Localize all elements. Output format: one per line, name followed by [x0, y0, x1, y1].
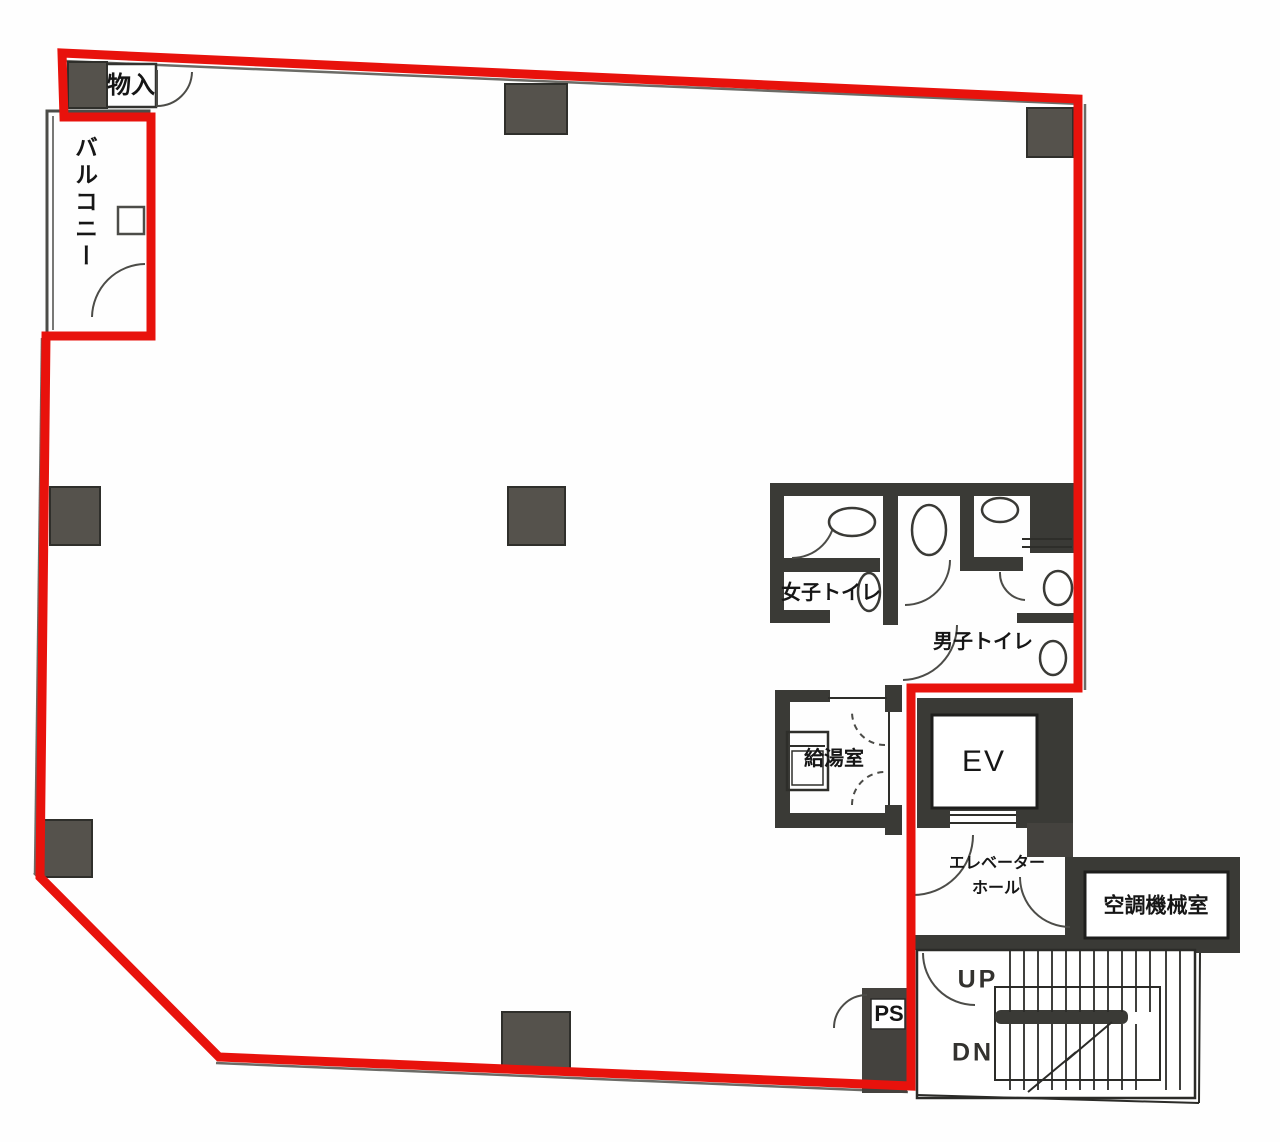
kitchen-folding-door-arc-lower — [852, 772, 885, 805]
urinal-fixture — [982, 498, 1018, 522]
column — [40, 820, 92, 877]
label-mens-toilet: 男子トイレ — [933, 632, 1033, 652]
label-elevator-hall-2: ホール — [972, 881, 1020, 897]
label-womens-toilet: 女子トイレ — [781, 583, 881, 603]
stall2-door-arc — [905, 560, 950, 605]
column — [68, 62, 107, 108]
label-storage: 物入 — [107, 74, 155, 98]
toilet-fixture — [912, 505, 946, 555]
label-hvac-room: 空調機械室 — [1104, 896, 1209, 917]
label-kitchenette: 給湯室 — [804, 749, 864, 769]
column — [508, 487, 565, 545]
storage-door-arc — [157, 72, 192, 106]
label-elevator-hall-1: エレベーター — [949, 856, 1045, 872]
toilet-fixture — [829, 508, 875, 536]
kitchen-folding-door-arc-upper — [852, 712, 885, 745]
columns — [40, 62, 1073, 1072]
lease-boundary — [40, 53, 1078, 1086]
stall3-door-arc — [1000, 572, 1025, 600]
stair-handrail — [995, 1010, 1128, 1024]
floor-plan: 物入 バルコニー 女子トイレ 男子トイレ 給湯室 EV エレベーター ホール 空… — [0, 0, 1280, 1142]
sink-fixture — [1044, 571, 1072, 605]
column — [502, 1012, 570, 1072]
label-balcony: バルコニー — [73, 136, 96, 271]
hall-to-stairs-door-arc — [1020, 877, 1070, 927]
column — [50, 487, 100, 545]
column — [505, 84, 567, 134]
balcony-outline — [47, 111, 149, 335]
toilet-fixture — [1040, 641, 1066, 675]
label-elevator: EV — [962, 747, 1006, 777]
label-stairs-down: DN — [952, 1041, 994, 1066]
label-pipe-space: PS — [874, 1003, 903, 1025]
balcony-door-arc — [92, 264, 145, 317]
floor-plan-drawing — [0, 0, 1280, 1142]
column — [1027, 108, 1073, 157]
stair-hall-wall — [911, 935, 1071, 950]
label-stairs-up: UP — [958, 968, 999, 993]
